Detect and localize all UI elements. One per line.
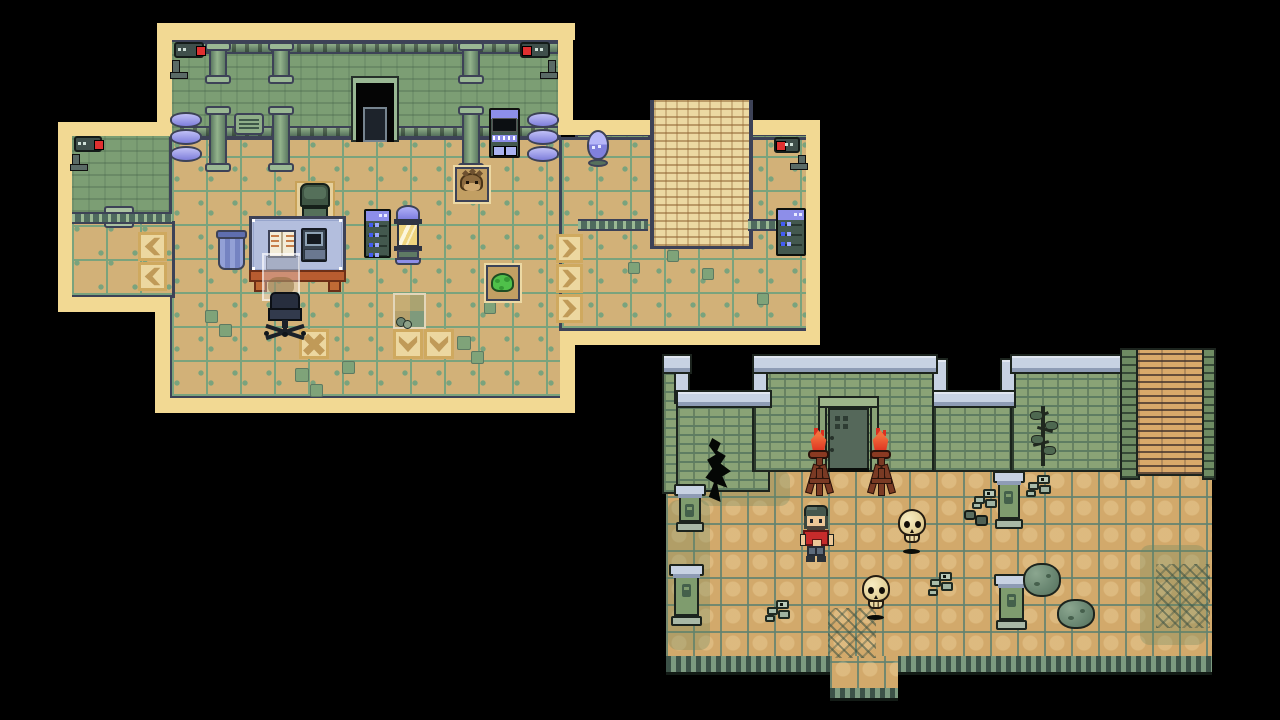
eye-socket xyxy=(915,521,921,528)
door-threshold xyxy=(828,468,869,472)
bone-eye xyxy=(780,603,783,606)
sprite-part xyxy=(702,438,736,502)
pillar-base xyxy=(676,522,704,532)
bone xyxy=(928,589,938,596)
boulder xyxy=(1023,560,1061,600)
cap-shade xyxy=(673,574,700,578)
moss-spot xyxy=(1080,609,1085,613)
sprite-part xyxy=(684,587,689,590)
sprite-part xyxy=(1006,494,1011,497)
bone xyxy=(1026,490,1036,497)
wall-cap xyxy=(678,392,770,406)
leaf-clump xyxy=(1045,421,1058,430)
door-glyph xyxy=(835,416,840,421)
boulder-body xyxy=(1057,599,1095,629)
player-character[interactable] xyxy=(799,505,833,562)
door-glyph xyxy=(835,424,840,429)
boot xyxy=(806,556,815,562)
floating-skull[interactable] xyxy=(861,575,891,621)
eye xyxy=(810,519,813,523)
floor-exit xyxy=(830,656,898,690)
skull-jaw xyxy=(868,600,884,609)
door-glyph xyxy=(843,416,848,421)
sprite-part xyxy=(687,507,692,510)
bone xyxy=(1039,485,1051,494)
cap-shade xyxy=(678,494,702,498)
stone-pillar xyxy=(676,484,704,534)
arm xyxy=(828,534,834,546)
bone xyxy=(941,582,953,591)
hair-shine xyxy=(807,507,817,510)
boot xyxy=(817,556,826,562)
stone-pillar xyxy=(671,564,702,628)
wall-cap xyxy=(754,356,936,372)
ladder-rungs[interactable] xyxy=(1138,350,1206,474)
leaf-clump xyxy=(1030,411,1043,420)
pillar-glyph xyxy=(1004,491,1013,504)
floor-exit-trim xyxy=(830,688,898,701)
torch[interactable] xyxy=(805,428,832,496)
leaf-clump xyxy=(1043,446,1056,455)
torch[interactable] xyxy=(867,428,894,496)
bone-pile xyxy=(1026,472,1056,498)
bone-pile xyxy=(928,569,960,597)
bone xyxy=(765,615,775,622)
wall-cap xyxy=(1012,356,1124,372)
brick-wall xyxy=(934,404,1014,470)
eye-socket xyxy=(879,587,885,594)
pillar-glyph xyxy=(685,504,694,517)
small-rocks xyxy=(962,505,990,529)
door-glyph xyxy=(843,424,848,429)
bone xyxy=(778,610,790,619)
game-viewport[interactable] xyxy=(0,0,1280,720)
arm xyxy=(800,534,806,546)
ladder-rail xyxy=(1122,350,1138,478)
bone-eye xyxy=(987,492,990,495)
boulder xyxy=(1057,596,1095,632)
pillar-base xyxy=(995,519,1023,529)
rock xyxy=(975,515,988,526)
bone-eye xyxy=(1041,478,1044,481)
cracked-floor xyxy=(1156,564,1210,628)
eye xyxy=(819,519,822,523)
floating-skull[interactable] xyxy=(897,509,927,555)
bone-eye xyxy=(943,575,946,578)
floor-trim xyxy=(666,656,1212,675)
pillar-glyph xyxy=(1007,594,1016,607)
pillar-glyph xyxy=(682,584,691,597)
moss-spot xyxy=(1046,574,1051,578)
skull-jaw xyxy=(904,534,920,543)
torch-strut xyxy=(809,478,830,484)
dead-tree xyxy=(1027,402,1059,470)
skull-shadow xyxy=(903,549,920,554)
boulder-body xyxy=(1023,563,1061,597)
sprite-part xyxy=(1009,597,1014,600)
wall-cap xyxy=(934,392,1014,406)
pillar-base xyxy=(996,620,1027,630)
wall-crack xyxy=(702,438,736,502)
cap-shade xyxy=(997,481,1021,485)
flame-icon xyxy=(810,430,827,452)
leaf-clump xyxy=(1031,435,1044,444)
pillar-base xyxy=(671,616,702,626)
skull-shadow xyxy=(867,615,884,620)
ruins-map[interactable] xyxy=(0,0,1280,720)
eye-socket xyxy=(904,521,910,528)
torch-strut xyxy=(871,478,892,484)
eye-socket xyxy=(868,587,874,594)
wall-cap xyxy=(664,356,690,372)
sideburn xyxy=(825,516,828,529)
ladder-rail xyxy=(1204,350,1214,478)
flame-icon xyxy=(872,430,889,452)
bone-pile xyxy=(765,597,795,623)
cap-shade xyxy=(998,584,1025,588)
pants-split xyxy=(815,546,817,556)
wall-joint xyxy=(932,404,936,470)
